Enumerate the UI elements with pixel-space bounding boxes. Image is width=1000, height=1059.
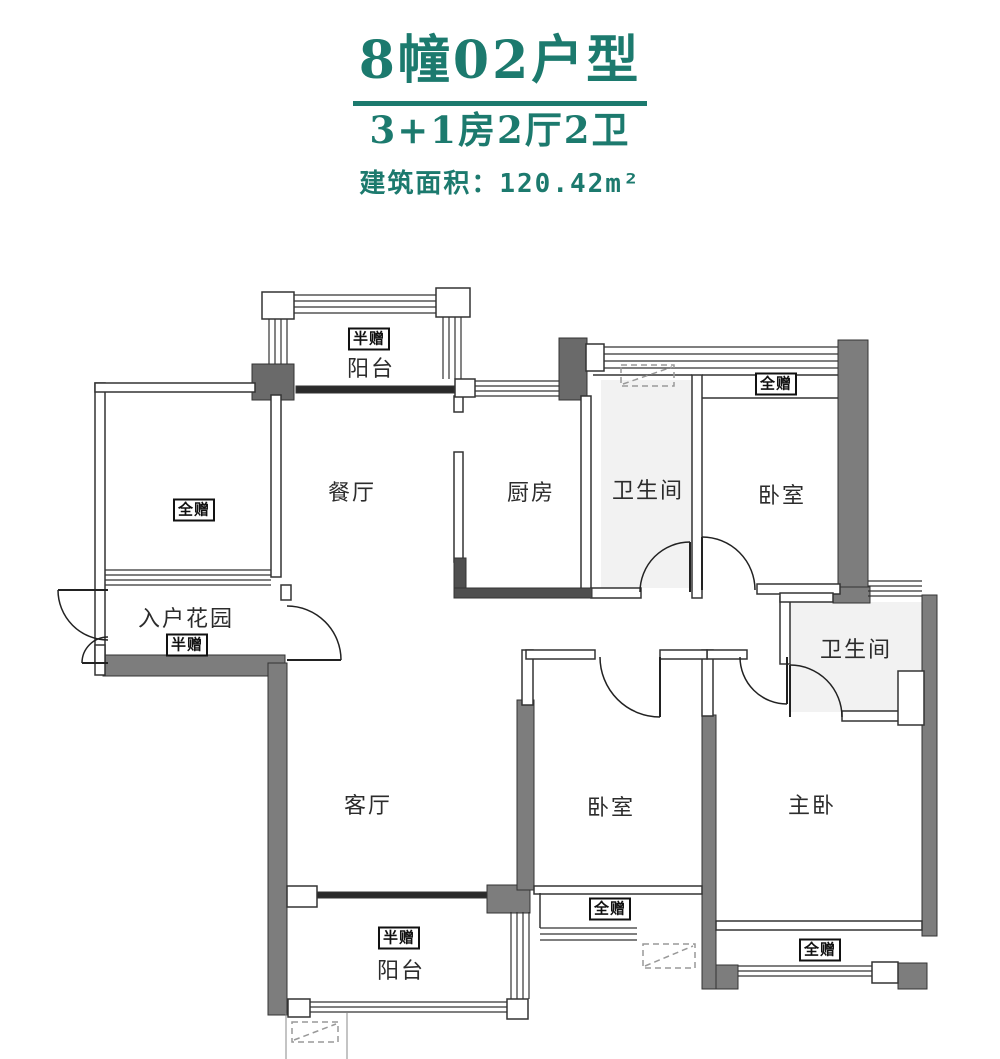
gift-room-tag: 全赠 bbox=[173, 499, 215, 522]
bedroom-top-gift-tag: 全赠 bbox=[755, 373, 797, 396]
master-gift-tag: 全赠 bbox=[799, 939, 841, 962]
dark-strips bbox=[296, 386, 592, 898]
bedroom-mid-gift-tag: 全赠 bbox=[589, 898, 631, 921]
balcony-top-label: 阳台 bbox=[347, 351, 395, 383]
balcony-bottom-label: 阳台 bbox=[377, 953, 425, 985]
bath-top-label: 卫生间 bbox=[612, 473, 684, 505]
kitchen-label: 厨房 bbox=[507, 475, 555, 507]
living-label: 客厅 bbox=[344, 788, 392, 820]
dining-label: 餐厅 bbox=[328, 475, 376, 507]
bedroom-top-label: 卧室 bbox=[758, 478, 806, 510]
entry-garden-label: 入户花园 bbox=[138, 601, 234, 633]
balcony-bottom-gift-tag: 半赠 bbox=[378, 927, 420, 950]
entry-garden-gift-tag: 半赠 bbox=[166, 634, 208, 657]
bedroom-mid-label: 卧室 bbox=[587, 790, 635, 822]
bath-mid-label: 卫生间 bbox=[820, 632, 892, 664]
floorplan-drawing bbox=[0, 0, 1000, 1059]
balcony-top-gift-tag: 半赠 bbox=[348, 328, 390, 351]
master-label: 主卧 bbox=[788, 788, 836, 820]
